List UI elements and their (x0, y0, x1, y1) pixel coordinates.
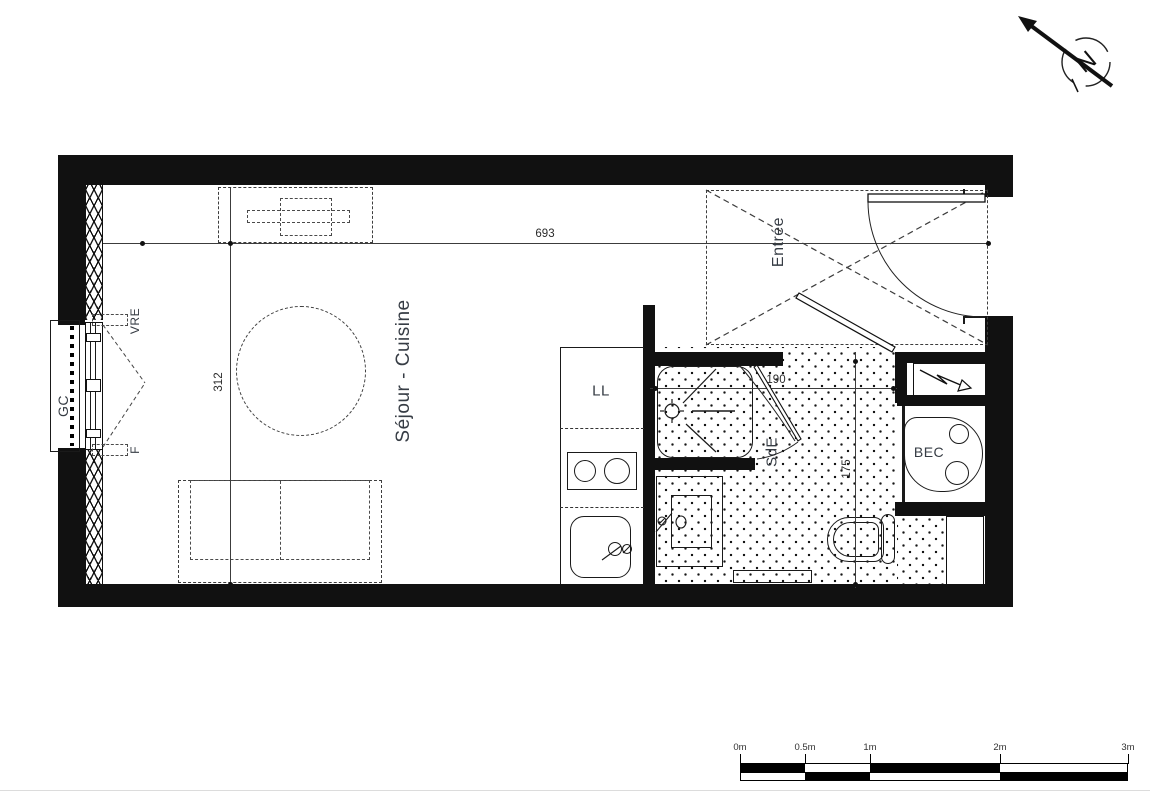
water-heater-label: BEC (914, 444, 944, 460)
vanity-basin (671, 495, 712, 548)
dim-line-190 (650, 388, 897, 389)
dim-line-175 (855, 352, 856, 588)
scale-label-05m: 0.5m (794, 742, 815, 753)
dimension-endpoint (853, 582, 858, 587)
scale-label-3m: 3m (1121, 742, 1134, 753)
wall-closet-top (895, 352, 990, 363)
wall-insulation-upper (85, 185, 103, 320)
dimension-endpoint (140, 241, 145, 246)
dimension-endpoint (228, 241, 233, 246)
scale-tick (1128, 754, 1129, 764)
guardrail-label: GC (55, 395, 71, 417)
dim-label-312: 312 (213, 372, 225, 391)
window-dashed-box (92, 444, 128, 456)
window-transom-top (86, 333, 101, 342)
dim-line-312 (230, 187, 231, 584)
wall-closet-bottom (895, 502, 990, 516)
overhead-unit-plus-v (280, 198, 332, 236)
washing-machine-label: LL (592, 383, 610, 400)
electrical-panel (913, 363, 986, 396)
round-table (236, 306, 366, 436)
burner-right (604, 458, 630, 484)
shower-tray (657, 366, 753, 458)
scale-label-2m: 2m (993, 742, 1006, 753)
dimension-endpoint (653, 386, 658, 391)
bathroom-shelf (733, 570, 812, 583)
room-label-entrance: Entrée (770, 217, 788, 267)
wall-left-lower (58, 448, 85, 607)
counter-dashed-divider-1 (560, 428, 644, 429)
dimension-endpoint (986, 241, 991, 246)
dimension-endpoint (853, 359, 858, 364)
wc-nook-tile-floor (897, 513, 945, 584)
scale-bar: 0m 0.5m 1m 2m 3m (740, 740, 1130, 785)
wall-left-upper (58, 185, 85, 325)
dim-label-693: 693 (535, 228, 554, 240)
scale-segment (1000, 772, 1127, 781)
page-bottom-divider (0, 790, 1150, 791)
sofa-divider (280, 481, 281, 560)
water-heater-pipe-2 (945, 461, 969, 485)
water-heater-pipe-1 (949, 424, 969, 444)
counter-edge-vertical (560, 347, 561, 584)
wall-shower-top (655, 352, 783, 366)
roller-shutter-label: VRE (128, 308, 142, 334)
window-transom-mid (86, 379, 101, 392)
dimension-endpoint (228, 582, 233, 587)
scale-segment (870, 764, 1000, 773)
wall-top (58, 155, 1013, 185)
burner-left (574, 460, 596, 482)
floor-plan: 693 312 190 175 Séjour - Cuisine Entrée … (0, 0, 1150, 800)
scale-segment (805, 772, 870, 781)
dim-line-693 (103, 243, 988, 244)
scale-segment (741, 764, 805, 773)
scale-label-1m: 1m (863, 742, 876, 753)
north-compass-icon: N (1018, 16, 1112, 92)
technical-shaft (946, 516, 984, 585)
counter-dashed-divider-2 (560, 507, 644, 508)
window-transom-bottom (86, 429, 101, 438)
wall-under-panel (897, 395, 990, 406)
guardrail-box (50, 320, 80, 452)
wall-kitchen-bathroom (643, 305, 655, 584)
dimension-endpoint (891, 386, 896, 391)
toilet-seat (833, 522, 879, 557)
kitchen-sink-drain (608, 542, 622, 556)
scale-bar-body (740, 763, 1128, 781)
wall-shower-bottom (653, 458, 755, 470)
scale-label-0m: 0m (733, 742, 746, 753)
toilet-tank (881, 514, 895, 564)
window-swing-dashes (103, 325, 145, 447)
guardrail-balusters (70, 326, 74, 446)
dim-label-175: 175 (841, 459, 853, 478)
counter-edge-top (560, 347, 644, 348)
room-label-living-kitchen: Séjour - Cuisine (393, 299, 415, 442)
entrance-reserved-zone (706, 190, 988, 345)
wall-right-upper (985, 185, 1013, 197)
compass-north-letter: N (1070, 45, 1102, 78)
room-label-bathroom: SdE (764, 437, 781, 467)
window-label: F (128, 446, 142, 454)
dim-label-190: 190 (766, 374, 785, 386)
wall-bottom (85, 584, 1013, 607)
shutter-dashed-box (92, 314, 128, 326)
